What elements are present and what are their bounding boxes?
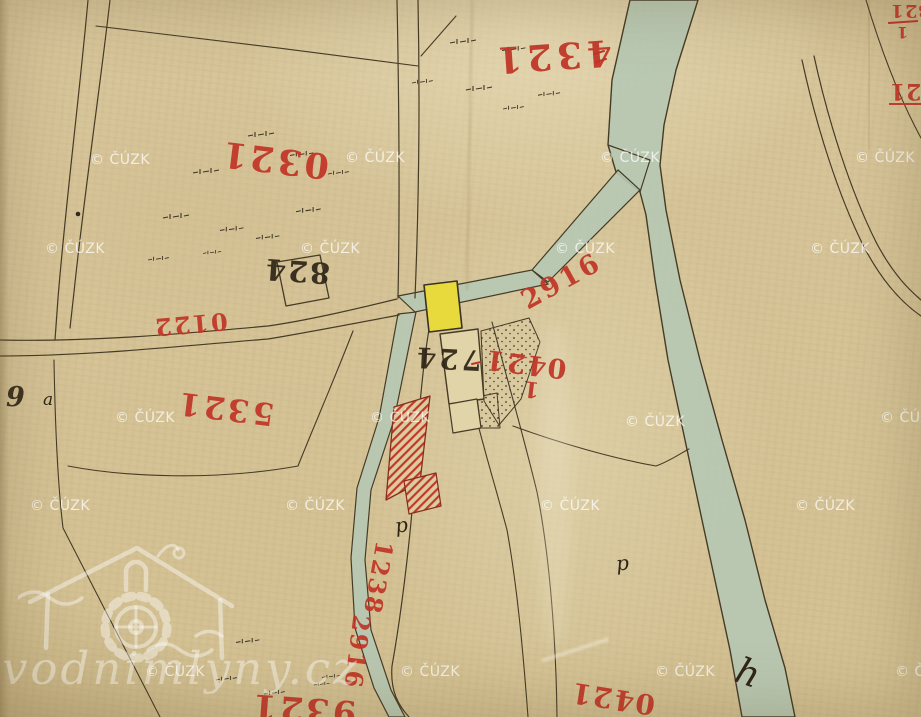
cuzk-watermark: © ČÚZK xyxy=(370,410,430,426)
annotation-letter-p-east: p xyxy=(615,552,630,573)
cuzk-watermark: © ČÚZK xyxy=(285,498,345,514)
stream xyxy=(608,0,795,717)
cuzk-watermark: © ČÚZK xyxy=(600,150,660,166)
road-north xyxy=(397,0,399,298)
logo-lamp-bulb xyxy=(174,548,184,558)
annotation-letter-p-west: p xyxy=(394,514,409,536)
corner-fraction-numerator: 123 xyxy=(890,1,921,19)
house-427-annex xyxy=(449,399,481,433)
cuzk-watermark: © ČÚZK xyxy=(400,664,460,680)
cuzk-watermark: © ČÚZK xyxy=(895,664,921,680)
cuzk-watermark: © ČÚZK xyxy=(45,241,105,257)
cuzk-watermark: © ČÚZK xyxy=(90,152,150,168)
corner-fraction-denominator: 1 xyxy=(897,24,908,40)
cuzk-watermark: © ČÚZK xyxy=(345,150,405,166)
cuzk-watermark: © ČÚZK xyxy=(625,414,685,430)
house-label-428: 428 xyxy=(263,254,331,288)
path-northwest xyxy=(55,0,88,340)
cadastral-map-scan: 1234 1230 1235 2210 2916 1240 1 1238 291… xyxy=(0,0,921,717)
cuzk-watermark: © ČÚZK xyxy=(655,664,715,680)
buildings xyxy=(277,255,484,514)
yellow-mill-building xyxy=(424,281,462,332)
road-label-2210: 2210 xyxy=(152,309,229,339)
ruin-hatched-annex xyxy=(404,473,441,514)
parcel-label-1234: 1234 xyxy=(491,34,613,78)
house-label-427: 427 xyxy=(413,342,482,373)
cuzk-watermark: © ČÚZK xyxy=(880,410,921,426)
annotation-digit-9: 9 xyxy=(6,384,25,411)
cuzk-watermark: © ČÚZK xyxy=(810,241,870,257)
cuzk-watermark: © ČÚZK xyxy=(300,241,360,257)
cuzk-watermark: © ČÚZK xyxy=(555,241,615,257)
cuzk-watermark: © ČÚZK xyxy=(855,150,915,166)
vodnimlyny-watermark: vodnimlyny.cz xyxy=(2,642,360,695)
parcel-label-1240-1-denominator: 1 xyxy=(523,377,541,401)
annotation-letter-a: a xyxy=(43,392,53,409)
cuzk-watermark: © ČÚZK xyxy=(795,498,855,514)
ink-blot xyxy=(76,212,81,217)
edge-label-12: 12 xyxy=(889,80,921,105)
cuzk-watermark: © ČÚZK xyxy=(30,498,90,514)
cuzk-watermark: © ČÚZK xyxy=(540,498,600,514)
cuzk-watermark: © ČÚZK xyxy=(115,410,175,426)
logo-window-arch xyxy=(126,562,146,590)
